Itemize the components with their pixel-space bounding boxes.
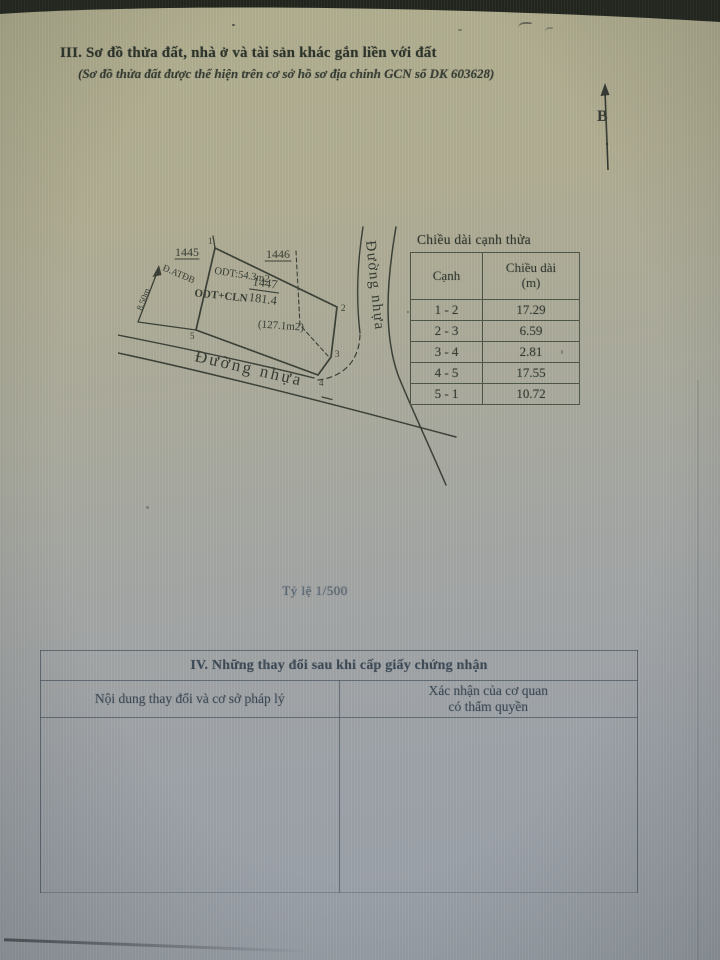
parcel-divider-dashed [296,251,328,356]
changes-content-col-header: Nội dung thay đổi và cơ sở pháp lý [41,681,340,718]
vertex-4: 4 [319,378,324,388]
changes-confirm-col-header: Xác nhận của cơ quan có thẩm quyền [339,681,638,718]
paper-scribble [518,22,532,29]
edge-length-table: Cạnh Chiều dài (m) 1 - 2 17.29 2 - 3 6.5… [410,252,580,405]
cln-portion-label: (127.1m2) [258,318,305,333]
vertex-3: 3 [335,349,340,359]
section-iv-changes-block: IV. Những thay đổi sau khi cấp giấy chứn… [40,650,638,893]
edge-table-title: Chiều dài cạnh thửa [410,232,590,248]
vertex-5: 5 [190,331,195,341]
edge-dim-label: 8.50m [135,287,152,312]
changes-confirm-empty-cell [339,718,638,893]
north-arrow: B [578,82,634,174]
adjacent-plot-1446: 1446 [266,247,290,261]
length-col-header: Chiều dài (m) [483,253,580,300]
road-bottom-lower-edge [118,353,456,437]
table-row: 5 - 1 10.72 [411,384,580,405]
changes-content-empty-cell [41,718,340,893]
north-label: B [597,108,608,125]
paper-speck [146,506,149,509]
paper-speck [458,29,462,31]
parcel-area: 181.4 [248,290,279,308]
changes-table: IV. Những thay đổi sau khi cấp giấy chứn… [40,650,638,893]
paper-edge-shadow [4,938,304,952]
table-row: 2 - 3 6.59 [411,321,580,342]
vertex-2: 2 [341,303,346,313]
scanned-land-certificate-page: III. Sơ đồ thửa đất, nhà ở và tài sản kh… [0,0,720,960]
parcel-number: 1447 [252,274,279,291]
table-row: 1 - 2 17.29 [411,300,580,321]
edge-length-table-block: Chiều dài cạnh thửa Cạnh Chiều dài (m) 1… [410,232,590,405]
paper-speck [232,24,235,26]
paper-speck [561,350,563,354]
section-iii-title: III. Sơ đồ thửa đất, nhà ở và tài sản kh… [60,45,540,62]
table-row: 3 - 4 2.81 [411,342,580,363]
paper-fold-line [697,380,699,960]
scale-note: Tỷ lệ 1/500 [255,583,375,599]
photo-top-shadow [0,0,720,26]
paper-scribble [545,27,553,33]
paper-speck [407,311,409,313]
parcel-diagram: 1445 1446 ODT:54.3m2 1447 181.4 ODT+CLN … [118,225,458,500]
easement-label: Đ.ATĐB [161,264,196,287]
section-iii-subtitle: (Sơ đồ thửa đất được thể hiện trên cơ sở… [78,66,558,82]
section-iv-title: IV. Những thay đổi sau khi cấp giấy chứn… [41,651,638,681]
adjacent-plot-1445: 1445 [175,245,199,259]
road-right-label: Đường nhựa [362,240,387,332]
table-row: 4 - 5 17.55 [411,363,580,384]
vertex-1: 1 [208,236,213,246]
parcel-number-area-fraction: 1447 181.4 [247,274,281,308]
edge-col-header: Cạnh [411,253,483,300]
